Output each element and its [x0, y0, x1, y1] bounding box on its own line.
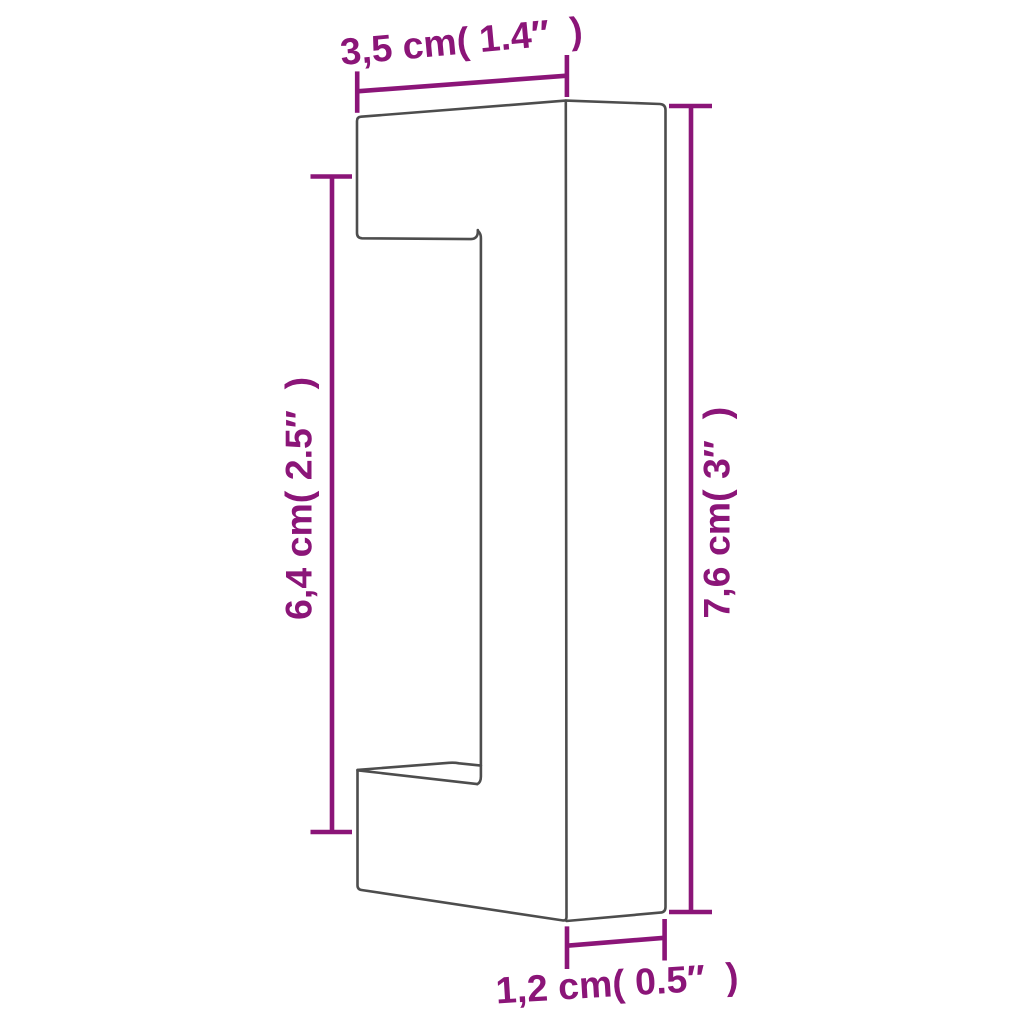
svg-text:7,6 cm( 3″ ): 7,6 cm( 3″ ) [696, 407, 738, 619]
svg-text:6,4 cm( 2.5″ ): 6,4 cm( 2.5″ ) [278, 377, 320, 620]
